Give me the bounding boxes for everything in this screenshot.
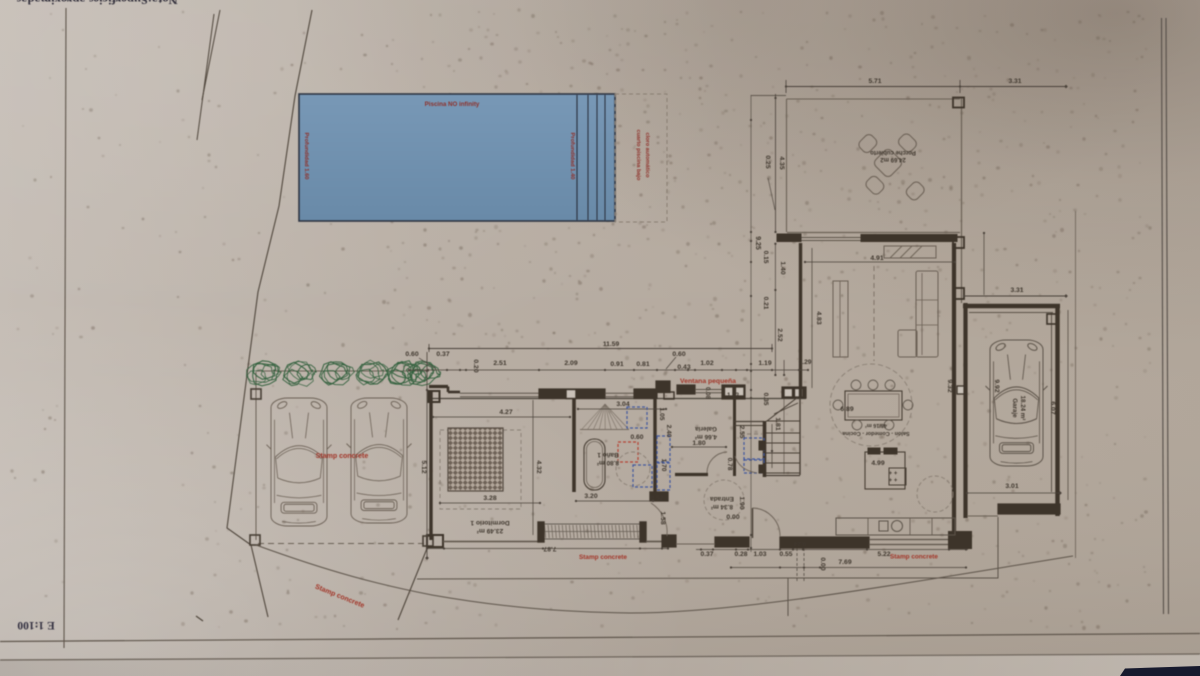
- svg-text:E 1:100: E 1:100: [17, 619, 55, 631]
- svg-text:0.81: 0.81: [636, 361, 649, 368]
- svg-text:Garaje: Garaje: [1011, 398, 1018, 418]
- svg-text:1.90: 1.90: [738, 496, 745, 509]
- svg-text:3.31: 3.31: [1008, 78, 1021, 85]
- svg-text:1.02: 1.02: [700, 360, 713, 367]
- svg-text:cloro automático: cloro automático: [644, 132, 650, 178]
- svg-text:1.73: 1.73: [727, 392, 740, 399]
- svg-text:Stamp concrete: Stamp concrete: [579, 554, 627, 561]
- svg-text:0.00: 0.00: [819, 557, 826, 570]
- svg-text:0.20: 0.20: [472, 359, 479, 372]
- svg-text:8.80 m²: 8.80 m²: [597, 459, 619, 466]
- svg-text:23.49 m²: 23.49 m²: [476, 527, 503, 534]
- svg-text:1.70: 1.70: [660, 459, 667, 472]
- svg-text:Ventana pequeña: Ventana pequeña: [680, 378, 736, 385]
- svg-text:4.27: 4.27: [499, 409, 512, 416]
- svg-text:Stamp concrete: Stamp concrete: [316, 453, 369, 460]
- svg-text:4.32: 4.32: [535, 460, 542, 473]
- svg-text:6.89: 6.89: [840, 406, 853, 413]
- svg-text:0.35: 0.35: [762, 393, 769, 406]
- svg-text:Piscina NO infinity: Piscina NO infinity: [425, 101, 480, 108]
- svg-text:0.37: 0.37: [436, 351, 449, 358]
- svg-text:3.28: 3.28: [483, 495, 496, 502]
- svg-text:1.81: 1.81: [774, 417, 781, 430]
- svg-text:4.35: 4.35: [778, 156, 785, 169]
- svg-text:5.71: 5.71: [868, 78, 881, 85]
- svg-text:Stamp concrete: Stamp concrete: [890, 554, 938, 561]
- svg-text:1.05: 1.05: [658, 408, 665, 421]
- svg-text:2.55: 2.55: [738, 426, 745, 439]
- svg-text:Nota:Superficies aproximadas: Nota:Superficies aproximadas: [16, 0, 177, 7]
- svg-text:+ +: + +: [889, 478, 898, 484]
- svg-text:2.52: 2.52: [776, 328, 783, 341]
- svg-text:1.03: 1.03: [753, 551, 766, 558]
- svg-text:cuarto piscina bajo: cuarto piscina bajo: [635, 130, 641, 182]
- svg-text:48/16 m²: 48/16 m²: [865, 422, 887, 429]
- svg-text:1.19: 1.19: [758, 360, 771, 367]
- svg-text:1.80: 1.80: [692, 440, 705, 447]
- svg-text:5.22: 5.22: [877, 551, 890, 558]
- svg-text:1.58: 1.58: [659, 511, 666, 524]
- svg-text:Profundidad 1.60: Profundidad 1.60: [303, 132, 309, 179]
- svg-text:+ +: + +: [889, 471, 898, 477]
- svg-text:4.66 m²: 4.66 m²: [695, 433, 717, 440]
- svg-text:8.34 m²: 8.34 m²: [711, 503, 733, 510]
- svg-text:Galería: Galería: [695, 425, 717, 432]
- svg-text:24.69 m2: 24.69 m2: [880, 156, 906, 162]
- svg-text:3.20: 3.20: [584, 493, 597, 500]
- svg-text:0.60: 0.60: [405, 351, 418, 358]
- svg-text:0.28: 0.28: [734, 551, 747, 558]
- svg-text:3.31: 3.31: [1010, 287, 1023, 294]
- svg-text:Baño 1: Baño 1: [597, 451, 619, 458]
- svg-text:9.32: 9.32: [946, 379, 953, 392]
- svg-text:Salón - Comedor - Cocina: Salón - Comedor - Cocina: [841, 430, 909, 436]
- svg-text:18.24 m²: 18.24 m²: [1019, 396, 1026, 421]
- svg-text:0.29: 0.29: [799, 359, 812, 366]
- svg-text:0.37: 0.37: [700, 551, 713, 558]
- svg-text:0.21: 0.21: [762, 297, 769, 310]
- svg-text:3.01: 3.01: [1005, 483, 1018, 490]
- svg-text:11.59: 11.59: [603, 341, 620, 348]
- svg-text:6.07: 6.07: [1049, 401, 1056, 414]
- svg-text:2.09: 2.09: [564, 360, 577, 367]
- svg-text:4.91: 4.91: [870, 255, 883, 262]
- svg-text:0.91: 0.91: [610, 361, 623, 368]
- svg-text:0.55: 0.55: [779, 551, 792, 558]
- svg-text:9.92: 9.92: [993, 379, 1000, 392]
- svg-text:0.43: 0.43: [677, 364, 690, 371]
- svg-text:0.60: 0.60: [630, 434, 643, 441]
- svg-text:1.40: 1.40: [779, 261, 786, 274]
- svg-text:Dormitorio 1: Dormitorio 1: [470, 519, 510, 526]
- svg-text:0.52: 0.52: [651, 495, 664, 502]
- svg-text:Porche cubierto: Porche cubierto: [870, 149, 916, 155]
- svg-text:2.51: 2.51: [493, 360, 506, 367]
- svg-text:0.24: 0.24: [793, 540, 806, 547]
- svg-text:2.40: 2.40: [665, 425, 672, 438]
- svg-text:Profundidad 1.40: Profundidad 1.40: [569, 132, 575, 179]
- svg-text:0.60: 0.60: [672, 351, 685, 358]
- svg-text:5.12: 5.12: [420, 460, 427, 473]
- svg-text:Entrada: Entrada: [710, 495, 734, 502]
- svg-text:4.99: 4.99: [871, 460, 884, 467]
- svg-text:0.15: 0.15: [762, 251, 769, 264]
- svg-text:7.87: 7.87: [543, 545, 556, 552]
- svg-text:9.25: 9.25: [754, 236, 761, 250]
- svg-text:0.25: 0.25: [764, 155, 771, 168]
- svg-text:0.00: 0.00: [726, 514, 739, 521]
- svg-text:7.69: 7.69: [838, 559, 851, 566]
- svg-text:0.78: 0.78: [726, 458, 733, 471]
- svg-text:0.08: 0.08: [704, 387, 711, 400]
- svg-text:4.83: 4.83: [815, 311, 822, 324]
